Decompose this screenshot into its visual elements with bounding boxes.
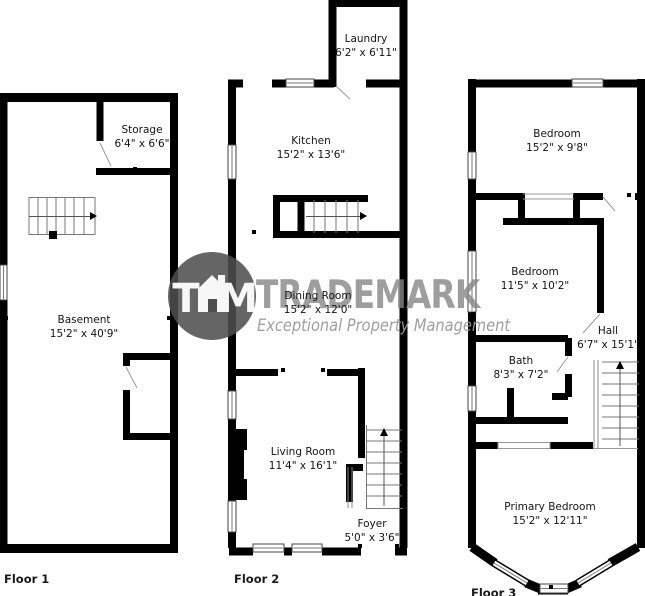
watermark-tagline-text: Exceptional Property Management [257, 315, 511, 335]
house-icon-door [208, 299, 217, 312]
room-dims: 15'2" x 13'6" [236, 149, 386, 163]
floor3-stairs [594, 360, 639, 448]
room-name: Basement [9, 314, 159, 328]
room-label-bath: Bath 8'3" x 7'2" [446, 355, 596, 383]
room-label-storage: Storage 6'4" x 6'6" [67, 124, 217, 152]
floor3-opening-lines [523, 194, 638, 449]
room-label-living-room: Living Room 11'4" x 16'1" [228, 446, 378, 474]
room-dims: 15'2" x 9'8" [482, 142, 632, 156]
room-dims: 15'2" x 40'9" [9, 328, 159, 342]
room-dims: 6'7" x 15'1" [533, 339, 645, 353]
floorplan-image: T M TRADEMARK Exceptional Property Manag… [0, 0, 645, 596]
room-label-dining-room: Dining Room 15'2" x 12'0" [243, 290, 393, 318]
stairs-direction-arrow [360, 212, 367, 220]
room-name: Bedroom [482, 128, 632, 142]
room-label-primary-bedroom: Primary Bedroom 15'2" x 12'11" [475, 501, 625, 529]
floor2-stairs-mid [306, 200, 367, 233]
room-name: Primary Bedroom [475, 501, 625, 515]
room-dims: 6'2" x 6'11" [291, 47, 441, 61]
room-dims: 11'4" x 16'1" [228, 460, 378, 474]
room-name: Bedroom [460, 266, 610, 280]
room-label-laundry: Laundry 6'2" x 6'11" [291, 33, 441, 61]
stairs-direction-arrow [90, 212, 97, 220]
floor2-door-leaves [337, 87, 350, 99]
monogram-letter-t: T [172, 276, 200, 322]
room-name: Dining Room [243, 290, 393, 304]
room-dims: 11'5" x 10'2" [460, 280, 610, 294]
room-dims: 8'3" x 7'2" [446, 369, 596, 383]
floor3-primary-opening [498, 443, 550, 449]
floor1-stairs [29, 198, 97, 240]
room-label-bedroom-1: Bedroom 15'2" x 9'8" [482, 128, 632, 156]
room-dims: 15'2" x 12'0" [243, 304, 393, 318]
room-name: Hall [533, 325, 645, 339]
room-name: Bath [446, 355, 596, 369]
room-name: Foyer [297, 518, 447, 532]
room-dims: 5'0" x 3'6" [297, 532, 447, 546]
floor1-window [0, 265, 7, 300]
floor1-caption: Floor 1 [4, 572, 49, 586]
room-name: Laundry [291, 33, 441, 47]
room-label-kitchen: Kitchen 15'2" x 13'6" [236, 135, 386, 163]
room-dims: 6'4" x 6'6" [67, 138, 217, 152]
floor3-caption: Floor 3 [471, 586, 516, 596]
room-label-bedroom-2: Bedroom 11'5" x 10'2" [460, 266, 610, 294]
room-name: Living Room [228, 446, 378, 460]
stairs-direction-arrow [380, 428, 388, 436]
room-label-basement: Basement 15'2" x 40'9" [9, 314, 159, 342]
room-name: Storage [67, 124, 217, 138]
floor2-caption: Floor 2 [234, 572, 279, 586]
room-dims: 15'2" x 12'11" [475, 515, 625, 529]
room-name: Kitchen [236, 135, 386, 149]
room-label-foyer: Foyer 5'0" x 3'6" [297, 518, 447, 546]
floor1-door-leaves [100, 143, 137, 388]
room-label-hall: Hall 6'7" x 15'1" [533, 325, 645, 353]
